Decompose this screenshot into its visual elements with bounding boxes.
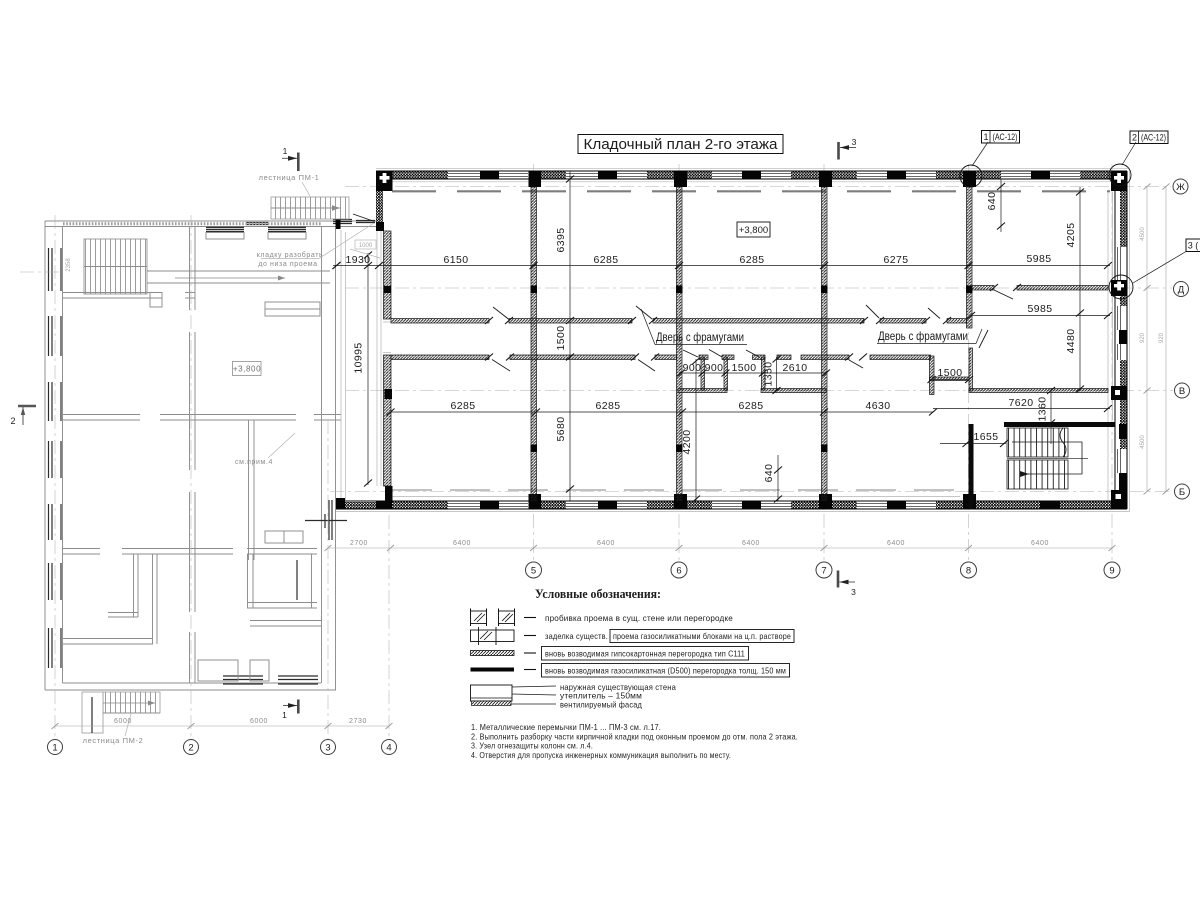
svg-text:пробивка проема в сущ. стене: пробивка проема в сущ. стене или перегор…: [545, 613, 733, 623]
svg-text:В: В: [1179, 386, 1185, 397]
svg-text:1000: 1000: [359, 243, 373, 249]
svg-text:5985: 5985: [1028, 303, 1053, 315]
svg-text:6285: 6285: [739, 400, 764, 412]
svg-text:вновь возводимая газосиликатна: вновь возводимая газосиликатная (D500) п…: [545, 666, 786, 676]
svg-text:5985: 5985: [1027, 253, 1052, 265]
svg-text:6285: 6285: [740, 254, 765, 266]
svg-text:3: 3: [852, 137, 857, 147]
svg-text:6400: 6400: [453, 540, 471, 547]
svg-text:(АС-12): (АС-12): [1141, 133, 1166, 143]
svg-text:вновь возводимая гипсокартонна: вновь возводимая гипсокартонная перегоро…: [545, 649, 745, 659]
svg-text:7620: 7620: [1009, 397, 1034, 409]
svg-text:6275: 6275: [884, 254, 909, 266]
svg-text:10995: 10995: [353, 342, 365, 373]
svg-text:Условные обозначения:: Условные обозначения:: [535, 587, 661, 601]
svg-text:6000: 6000: [114, 718, 132, 725]
svg-text:920: 920: [1159, 332, 1165, 343]
svg-text:6285: 6285: [451, 400, 476, 412]
svg-text:1: 1: [283, 146, 288, 156]
svg-text:Б: Б: [1179, 487, 1185, 498]
svg-text:3: 3: [851, 587, 856, 597]
svg-text:2700: 2700: [350, 540, 368, 547]
svg-text:Кладочный план 2-го этажа: Кладочный план 2-го этажа: [584, 136, 779, 153]
svg-text:4. Отверстия для пропуска инже: 4. Отверстия для пропуска инженерных ком…: [471, 751, 731, 760]
svg-text:1: 1: [52, 743, 57, 754]
svg-text:6150: 6150: [444, 254, 469, 266]
svg-text:5: 5: [531, 566, 536, 577]
svg-text:640: 640: [986, 192, 998, 211]
svg-text:5680: 5680: [555, 417, 567, 442]
svg-text:1500: 1500: [555, 326, 567, 351]
svg-text:4630: 4630: [866, 400, 891, 412]
svg-text:4500: 4500: [1140, 227, 1146, 241]
svg-text:6400: 6400: [742, 540, 760, 547]
svg-text:(АС-12): (АС-12): [993, 132, 1018, 142]
svg-text:8: 8: [966, 566, 971, 577]
svg-text:3: 3: [325, 743, 330, 754]
svg-text:2610: 2610: [783, 362, 808, 374]
svg-text:+3,800: +3,800: [233, 365, 261, 374]
svg-text:6395: 6395: [555, 228, 567, 253]
svg-text:1350: 1350: [763, 362, 775, 387]
svg-text:1500: 1500: [732, 362, 757, 374]
svg-text:2358: 2358: [66, 258, 72, 272]
svg-text:2730: 2730: [349, 718, 367, 725]
svg-text:6400: 6400: [597, 540, 615, 547]
svg-text:2. Выполнить разборку части ки: 2. Выполнить разборку части кирпичной кл…: [471, 733, 798, 742]
svg-text:1655: 1655: [974, 431, 999, 443]
svg-text:6285: 6285: [596, 400, 621, 412]
svg-text:640: 640: [763, 464, 775, 483]
svg-text:Дверь с фрамугами: Дверь с фрамугами: [878, 331, 968, 343]
svg-text:6285: 6285: [594, 254, 619, 266]
svg-text:4200: 4200: [681, 430, 693, 455]
svg-text:7: 7: [821, 566, 826, 577]
svg-text:кладку разобрать: кладку разобрать: [257, 251, 324, 259]
svg-text:4205: 4205: [1065, 223, 1077, 248]
svg-text:4480: 4480: [1065, 329, 1077, 354]
svg-text:2: 2: [10, 416, 15, 426]
svg-text:6: 6: [676, 566, 681, 577]
svg-text:см.прим.4: см.прим.4: [235, 459, 273, 466]
svg-text:6400: 6400: [887, 540, 905, 547]
svg-text:6400: 6400: [1031, 540, 1049, 547]
svg-text:3. Узел огнезащиты колонн см.: 3. Узел огнезащиты колонн см. л.4.: [471, 742, 593, 751]
svg-text:Д: Д: [1178, 285, 1185, 296]
svg-text:лестница ПМ-2: лестница ПМ-2: [83, 736, 144, 745]
svg-text:заделка существ.: заделка существ.: [545, 631, 608, 641]
svg-text:1. Металлические перемычки ПМ: 1. Металлические перемычки ПМ-1 ... ПМ-3…: [471, 723, 661, 732]
svg-text:1500: 1500: [938, 367, 963, 379]
svg-text:2: 2: [1132, 133, 1137, 143]
svg-text:1: 1: [282, 710, 287, 720]
svg-text:1: 1: [983, 132, 988, 142]
svg-text:3 (: 3 (: [1188, 241, 1199, 251]
svg-text:1360: 1360: [1037, 397, 1049, 422]
svg-text:Ж: Ж: [1176, 182, 1185, 193]
svg-text:4500: 4500: [1140, 435, 1146, 449]
svg-text:проема газосиликатными блоками: проема газосиликатными блоками на ц.п. р…: [613, 631, 791, 641]
svg-text:+3,800: +3,800: [739, 225, 768, 236]
svg-text:вентилируемый фасад: вентилируемый фасад: [560, 700, 642, 710]
svg-text:2: 2: [188, 743, 193, 754]
svg-text:9: 9: [1109, 566, 1114, 577]
svg-text:920: 920: [1140, 332, 1146, 343]
svg-text:6000: 6000: [250, 718, 268, 725]
svg-text:4: 4: [386, 743, 391, 754]
svg-text:900: 900: [705, 362, 724, 374]
svg-text:лестница ПМ-1: лестница ПМ-1: [259, 173, 320, 182]
svg-text:до низа проема: до низа проема: [258, 261, 317, 268]
svg-text:Дверь с фрамугами: Дверь с фрамугами: [656, 332, 744, 344]
